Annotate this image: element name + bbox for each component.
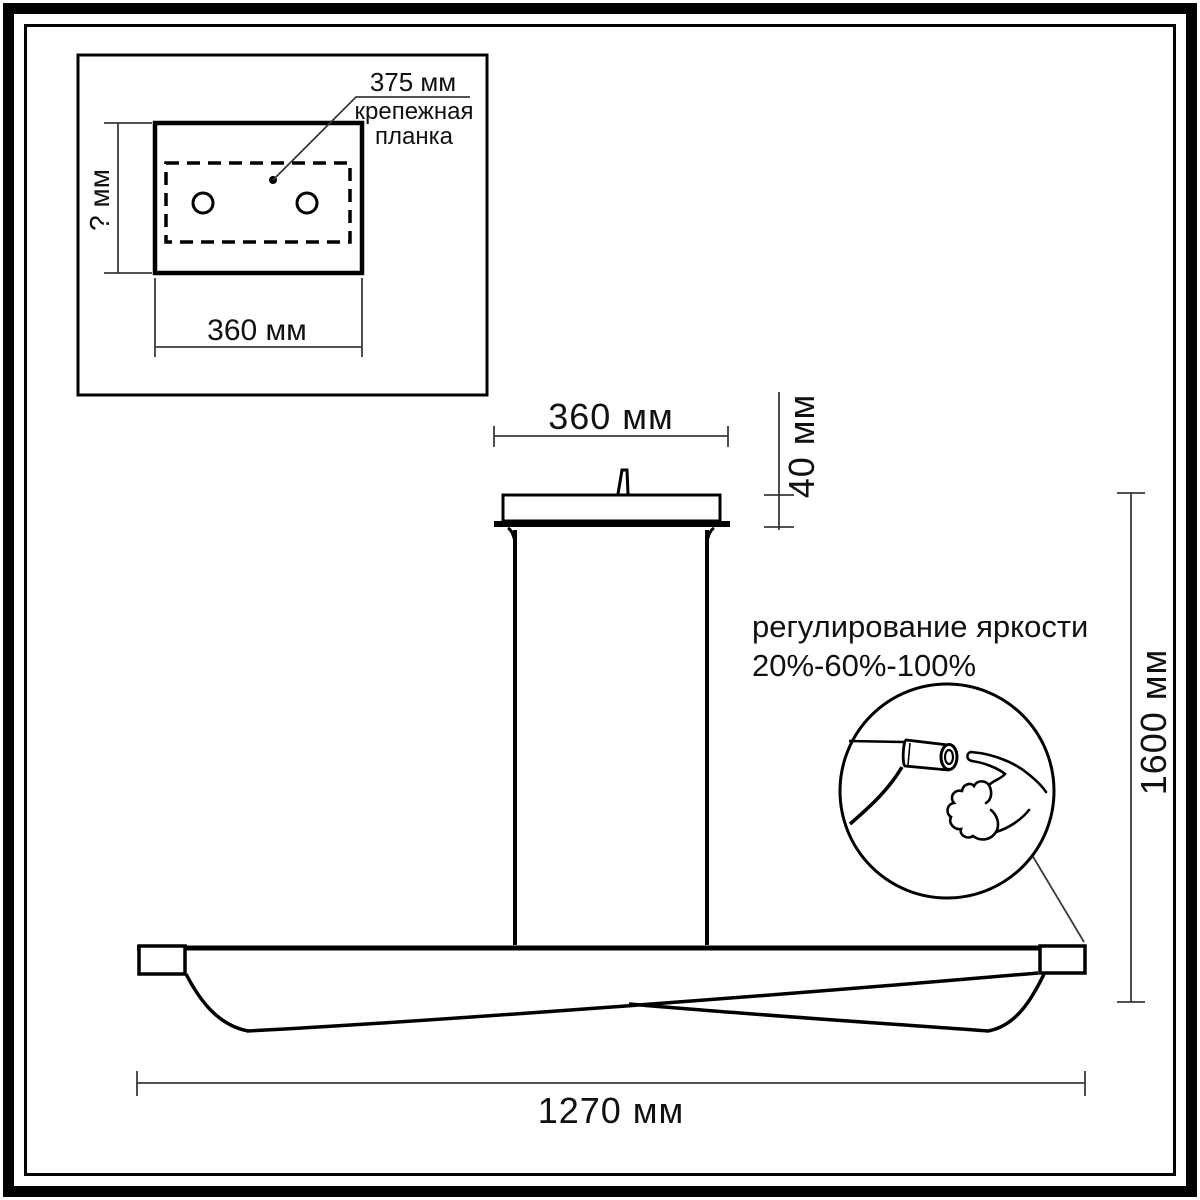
mounting-plate-label: крепежная планка — [344, 99, 484, 149]
mounting-plate-label-line2: планка — [344, 124, 484, 149]
end-cap-right — [1040, 946, 1085, 973]
dim-canopy-height-label: 40 мм — [781, 394, 823, 499]
screw-hole-right — [297, 193, 317, 213]
canopy-body — [503, 495, 720, 521]
inset-dim-360-label: 360 мм — [156, 314, 358, 348]
brightness-levels: 20%-60%-100% — [752, 648, 976, 684]
mounting-plate-label-line1: крепежная — [344, 99, 484, 124]
detail-leader-line — [1032, 855, 1084, 942]
ceiling-canopy — [494, 470, 730, 524]
detail-circle — [840, 684, 1054, 898]
suspension-stem — [508, 528, 714, 945]
screw-hole-left — [193, 193, 213, 213]
canopy-top-view — [155, 123, 362, 273]
lamp-dimension-lineart — [0, 0, 1200, 1200]
dim-canopy-width-label: 360 мм — [511, 396, 711, 438]
dim-lamp-length-label: 1270 мм — [461, 1090, 761, 1132]
dim-total-height-label: 1600 мм — [1133, 649, 1175, 796]
lamp-bar-assembly — [137, 946, 1085, 1031]
brightness-control-detail — [840, 684, 1084, 942]
canopy-pin — [618, 470, 628, 494]
inset-dim-height-label: ? мм — [84, 169, 116, 231]
brightness-title: регулирование яркости — [752, 609, 1088, 645]
shade-sail-left — [186, 973, 1038, 1031]
touch-sensor-cylinder — [903, 740, 957, 770]
bar-stub — [849, 741, 905, 742]
inset-dim-375-label: 375 мм — [343, 67, 483, 98]
technical-drawing-page: 375 мм крепежная планка ? мм 360 мм 360 … — [0, 0, 1200, 1200]
end-cap-left — [139, 946, 185, 974]
